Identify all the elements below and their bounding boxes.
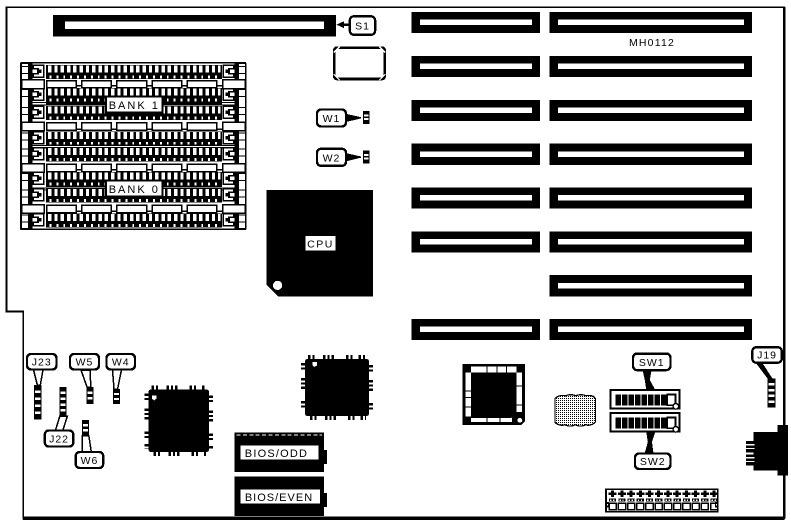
svg-text:J23: J23 [32, 356, 52, 368]
svg-text:W6: W6 [81, 455, 99, 467]
svg-text:BANK 1: BANK 1 [109, 100, 160, 112]
svg-text:W4: W4 [112, 356, 130, 368]
svg-text:BIOS/ODD: BIOS/ODD [245, 448, 308, 460]
svg-text:SW2: SW2 [640, 456, 666, 468]
svg-text:J19: J19 [757, 350, 777, 362]
svg-text:BANK 0: BANK 0 [109, 184, 160, 196]
svg-text:CPU: CPU [307, 238, 334, 250]
svg-text:MH0112: MH0112 [629, 37, 675, 49]
svg-text:S1: S1 [355, 21, 370, 33]
svg-text:BIOS/EVEN: BIOS/EVEN [245, 492, 313, 504]
svg-text:W1: W1 [323, 113, 341, 125]
svg-text:W2: W2 [323, 152, 341, 164]
svg-text:W5: W5 [76, 356, 94, 368]
svg-text:SW1: SW1 [639, 357, 665, 369]
svg-text:J22: J22 [49, 433, 69, 445]
